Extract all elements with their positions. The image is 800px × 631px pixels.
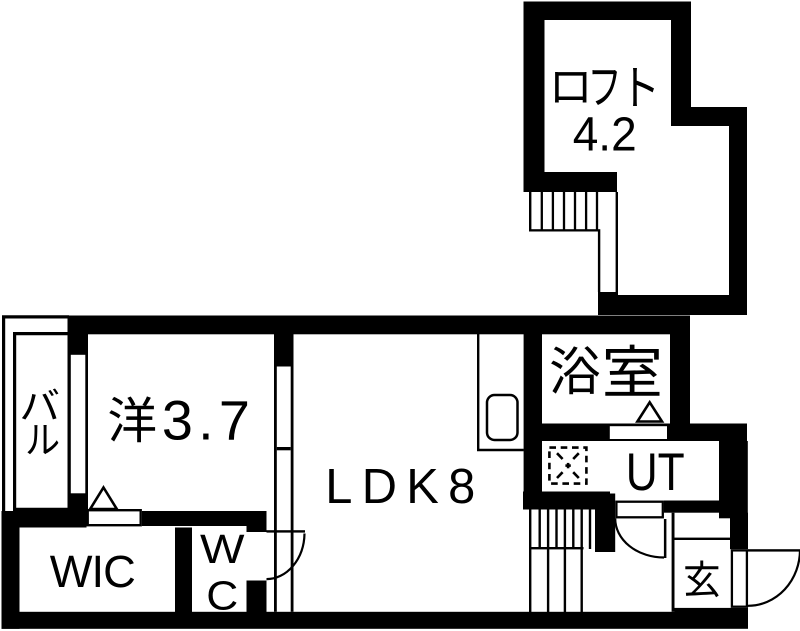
- svg-text:C: C: [206, 573, 238, 619]
- svg-text:WIC: WIC: [50, 546, 136, 597]
- svg-text:W: W: [200, 526, 245, 572]
- svg-text:3.7: 3.7: [162, 389, 250, 452]
- svg-text:4.2: 4.2: [573, 108, 637, 161]
- svg-text:UT: UT: [626, 443, 685, 502]
